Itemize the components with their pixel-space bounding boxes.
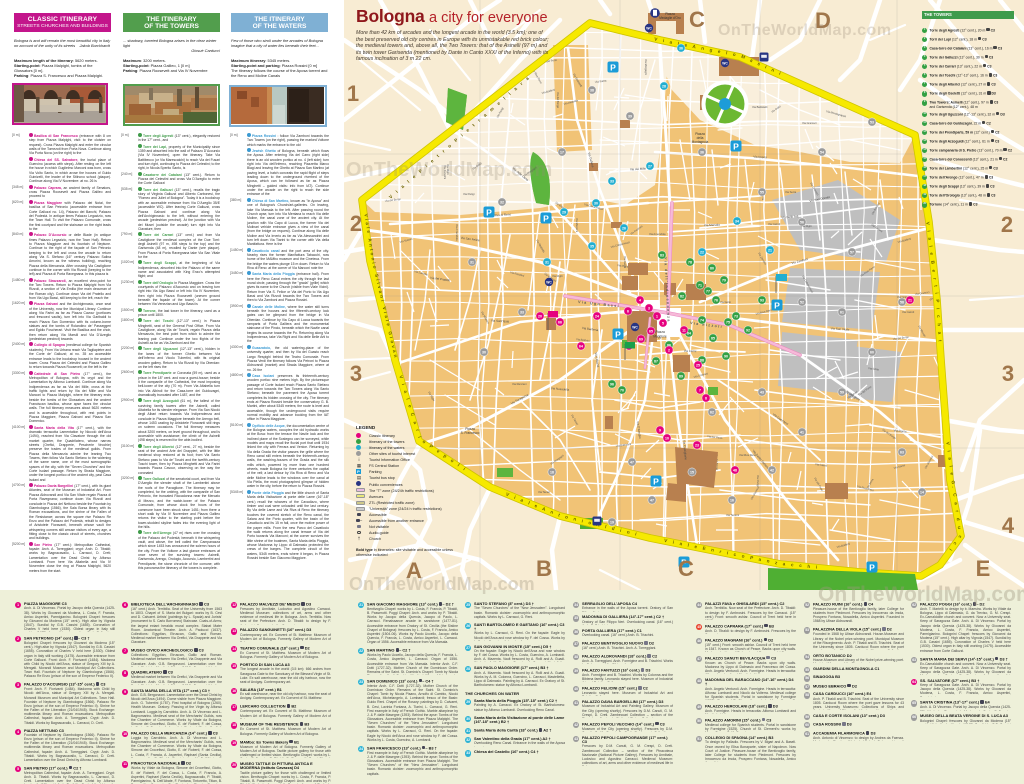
svg-text:76: 76 <box>714 298 718 302</box>
svg-text:38: 38 <box>590 88 594 92</box>
svg-text:14: 14 <box>920 490 924 494</box>
svg-text:64: 64 <box>579 344 583 348</box>
svg-text:34: 34 <box>735 219 739 223</box>
svg-text:P: P <box>774 300 780 310</box>
svg-text:Via Amendola: Via Amendola <box>455 224 459 241</box>
svg-text:P: P <box>733 141 739 151</box>
svg-text:18: 18 <box>550 470 554 474</box>
svg-text:52: 52 <box>800 300 804 304</box>
svg-text:Via Serra: Via Serra <box>785 190 797 194</box>
svg-text:Via Amendola: Via Amendola <box>649 232 666 236</box>
svg-text:60: 60 <box>870 350 874 354</box>
svg-text:Via Gramsci: Via Gramsci <box>802 121 817 125</box>
svg-text:2: 2 <box>668 348 670 352</box>
svg-text:15: 15 <box>690 470 694 474</box>
svg-text:16: 16 <box>730 498 734 502</box>
svg-text:Via Ranzani: Via Ranzani <box>512 382 527 386</box>
svg-text:Piazza: Piazza <box>655 330 665 334</box>
svg-text:Via Morgagni: Via Morgagni <box>644 59 648 75</box>
svg-text:Via Testoni: Via Testoni <box>726 513 739 517</box>
svg-text:5: 5 <box>662 321 664 325</box>
svg-text:WC: WC <box>546 280 552 284</box>
svg-text:21: 21 <box>768 248 772 252</box>
svg-text:36: 36 <box>700 150 704 154</box>
svg-text:92: 92 <box>746 328 750 332</box>
svg-text:41: 41 <box>800 430 804 434</box>
svg-text:59: 59 <box>840 390 844 394</box>
svg-text:P: P <box>615 329 621 339</box>
svg-text:53: 53 <box>870 120 874 124</box>
svg-text:69: 69 <box>639 337 643 341</box>
svg-text:96: 96 <box>610 382 614 386</box>
svg-text:Via Farini: Via Farini <box>684 349 697 353</box>
svg-text:71: 71 <box>698 283 702 287</box>
svg-text:32: 32 <box>500 200 504 204</box>
svg-text:4: 4 <box>639 298 641 302</box>
svg-text:56: 56 <box>800 220 804 224</box>
svg-text:24: 24 <box>595 314 599 318</box>
svg-text:Via Marconi: Via Marconi <box>575 218 579 233</box>
svg-text:3: 3 <box>350 361 362 386</box>
svg-text:10: 10 <box>665 436 669 440</box>
svg-text:78: 78 <box>688 260 692 264</box>
svg-text:58: 58 <box>900 300 904 304</box>
svg-text:31: 31 <box>545 260 549 264</box>
svg-text:P: P <box>869 562 875 572</box>
svg-text:65: 65 <box>649 329 653 333</box>
svg-text:33: 33 <box>520 310 524 314</box>
svg-text:61: 61 <box>840 310 844 314</box>
svg-text:42: 42 <box>770 468 774 472</box>
svg-text:75: 75 <box>726 320 730 324</box>
svg-text:P: P <box>543 213 549 223</box>
svg-text:Medaglie d'Oro: Medaglie d'Oro <box>659 16 681 20</box>
svg-text:3: 3 <box>648 306 650 310</box>
svg-text:Via Tanari: Via Tanari <box>538 490 550 494</box>
svg-text:36: 36 <box>679 46 683 50</box>
svg-text:21: 21 <box>908 298 912 302</box>
svg-text:20: 20 <box>538 314 542 318</box>
svg-text:23: 23 <box>695 443 699 447</box>
svg-text:P: P <box>653 476 659 486</box>
svg-text:54: 54 <box>820 150 824 154</box>
svg-text:25: 25 <box>696 363 700 367</box>
svg-text:WC: WC <box>632 325 638 329</box>
svg-text:77: 77 <box>706 289 710 293</box>
svg-text:82: 82 <box>680 294 684 298</box>
svg-text:17: 17 <box>560 150 564 154</box>
svg-text:1: 1 <box>347 81 359 106</box>
svg-text:Via Goito: Via Goito <box>720 300 732 304</box>
svg-text:35: 35 <box>590 244 594 248</box>
svg-text:Via Parigi: Via Parigi <box>756 475 760 487</box>
svg-text:93: 93 <box>760 298 764 302</box>
svg-text:9: 9 <box>659 428 661 432</box>
svg-text:28: 28 <box>662 84 666 88</box>
svg-text:Via Irnerio: Via Irnerio <box>753 155 767 160</box>
svg-text:62: 62 <box>710 410 714 414</box>
svg-text:29: 29 <box>562 210 566 214</box>
svg-text:Via Marsala: Via Marsala <box>704 223 720 228</box>
svg-text:31: 31 <box>470 260 474 264</box>
svg-text:8: 8 <box>705 396 707 400</box>
svg-text:73: 73 <box>734 314 738 318</box>
svg-text:Montagnola: Montagnola <box>692 140 709 144</box>
svg-text:7: 7 <box>699 388 701 392</box>
svg-text:55: 55 <box>760 190 764 194</box>
svg-text:4: 4 <box>1002 513 1015 538</box>
svg-text:2: 2 <box>350 211 362 236</box>
svg-text:47: 47 <box>650 498 654 502</box>
svg-text:P: P <box>486 207 492 217</box>
svg-text:22: 22 <box>700 250 704 254</box>
svg-text:39: 39 <box>628 114 632 118</box>
svg-text:19: 19 <box>610 520 614 524</box>
svg-text:2: 2 <box>1001 212 1013 237</box>
svg-text:47: 47 <box>630 460 634 464</box>
svg-text:30: 30 <box>482 350 486 354</box>
svg-text:Via Cairoli: Via Cairoli <box>768 222 781 226</box>
svg-text:80: 80 <box>710 266 714 270</box>
svg-text:79: 79 <box>722 278 726 282</box>
svg-text:3: 3 <box>1002 361 1014 386</box>
svg-text:87: 87 <box>654 359 658 363</box>
svg-text:Via Cairoli: Via Cairoli <box>902 310 915 314</box>
svg-text:26: 26 <box>622 226 626 230</box>
svg-text:Via del Borgo: Via del Borgo <box>556 92 560 109</box>
svg-text:30: 30 <box>594 201 598 205</box>
svg-text:C: C <box>689 7 705 32</box>
svg-text:P: P <box>610 62 616 72</box>
svg-text:43: 43 <box>760 390 764 394</box>
svg-text:Maggiore: Maggiore <box>653 335 667 339</box>
svg-text:70: 70 <box>620 388 624 392</box>
svg-text:Via Parigi: Via Parigi <box>463 192 475 196</box>
svg-text:89: 89 <box>679 374 683 378</box>
svg-text:11: 11 <box>682 328 686 332</box>
svg-text:6: 6 <box>627 309 629 313</box>
svg-text:1: 1 <box>656 314 658 318</box>
svg-text:90: 90 <box>724 354 728 358</box>
svg-text:57: 57 <box>850 250 854 254</box>
svg-text:E: E <box>976 556 991 581</box>
svg-text:85: 85 <box>711 336 715 340</box>
svg-text:WC: WC <box>722 61 728 65</box>
svg-text:83: 83 <box>660 253 664 257</box>
svg-text:66: 66 <box>558 320 562 324</box>
svg-text:74: 74 <box>700 318 704 322</box>
svg-text:63: 63 <box>900 450 904 454</box>
svg-text:WC: WC <box>646 26 652 30</box>
svg-text:33: 33 <box>610 179 614 183</box>
svg-text:B: B <box>536 556 552 581</box>
svg-text:C: C <box>678 556 694 581</box>
svg-text:27: 27 <box>648 164 652 168</box>
svg-text:48: 48 <box>733 468 737 472</box>
